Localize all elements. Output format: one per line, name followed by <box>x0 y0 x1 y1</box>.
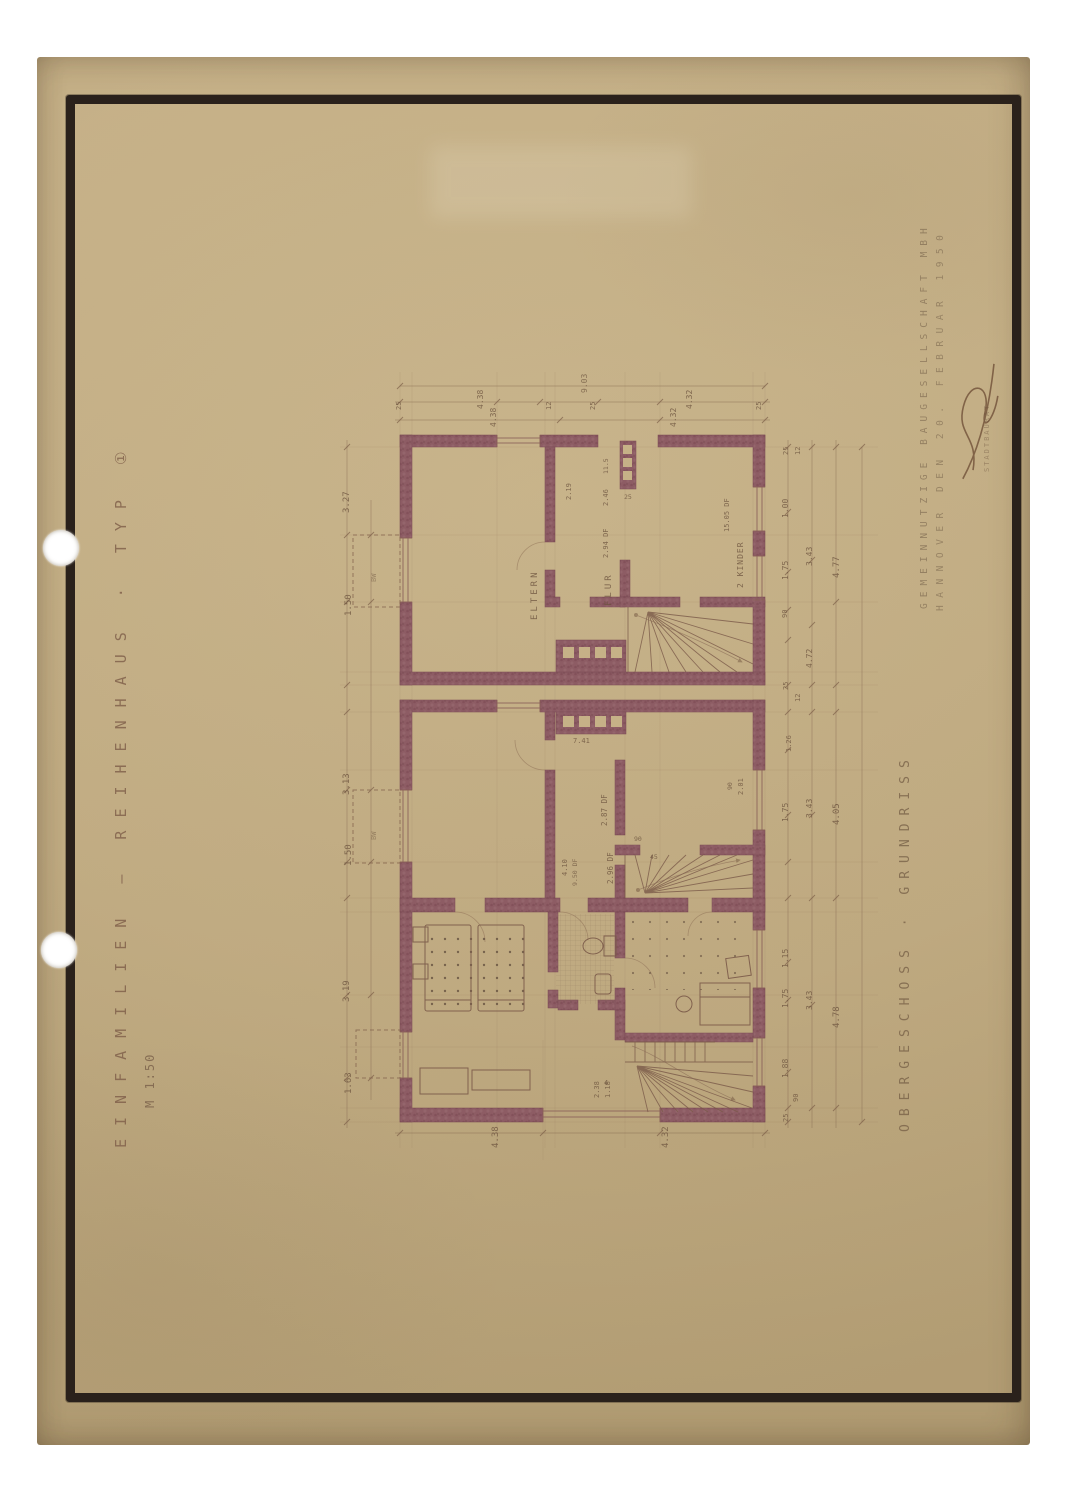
dimension-lines <box>344 383 865 1136</box>
dresser <box>420 1068 468 1094</box>
scanned-drawing-page: EINFAMILIEN – REIHENHAUS · TYP ① M 1:50 … <box>0 0 1067 1502</box>
floor-plan-drawing <box>0 0 1067 1502</box>
stair-upper-winder <box>628 607 753 672</box>
construction-lines <box>340 372 878 1160</box>
dresser <box>472 1070 530 1090</box>
nightstand <box>413 927 428 942</box>
stair-lower-flight <box>625 1042 715 1062</box>
stair-direction-arrows <box>632 613 742 1100</box>
nightstand <box>413 964 428 979</box>
chair <box>676 996 692 1012</box>
punch-hole <box>43 530 79 566</box>
window-lines <box>400 435 765 1122</box>
stair-lower-winder <box>625 1062 753 1112</box>
dashed-bumpouts <box>353 535 400 1078</box>
child-room-stipple <box>632 918 750 990</box>
party-wall <box>400 672 765 685</box>
walls-lower-unit <box>400 700 765 1122</box>
punch-hole <box>41 932 77 968</box>
dimension-ticks <box>344 383 865 1136</box>
bath-tiles <box>556 914 614 1004</box>
bed-stipple <box>430 928 524 1006</box>
